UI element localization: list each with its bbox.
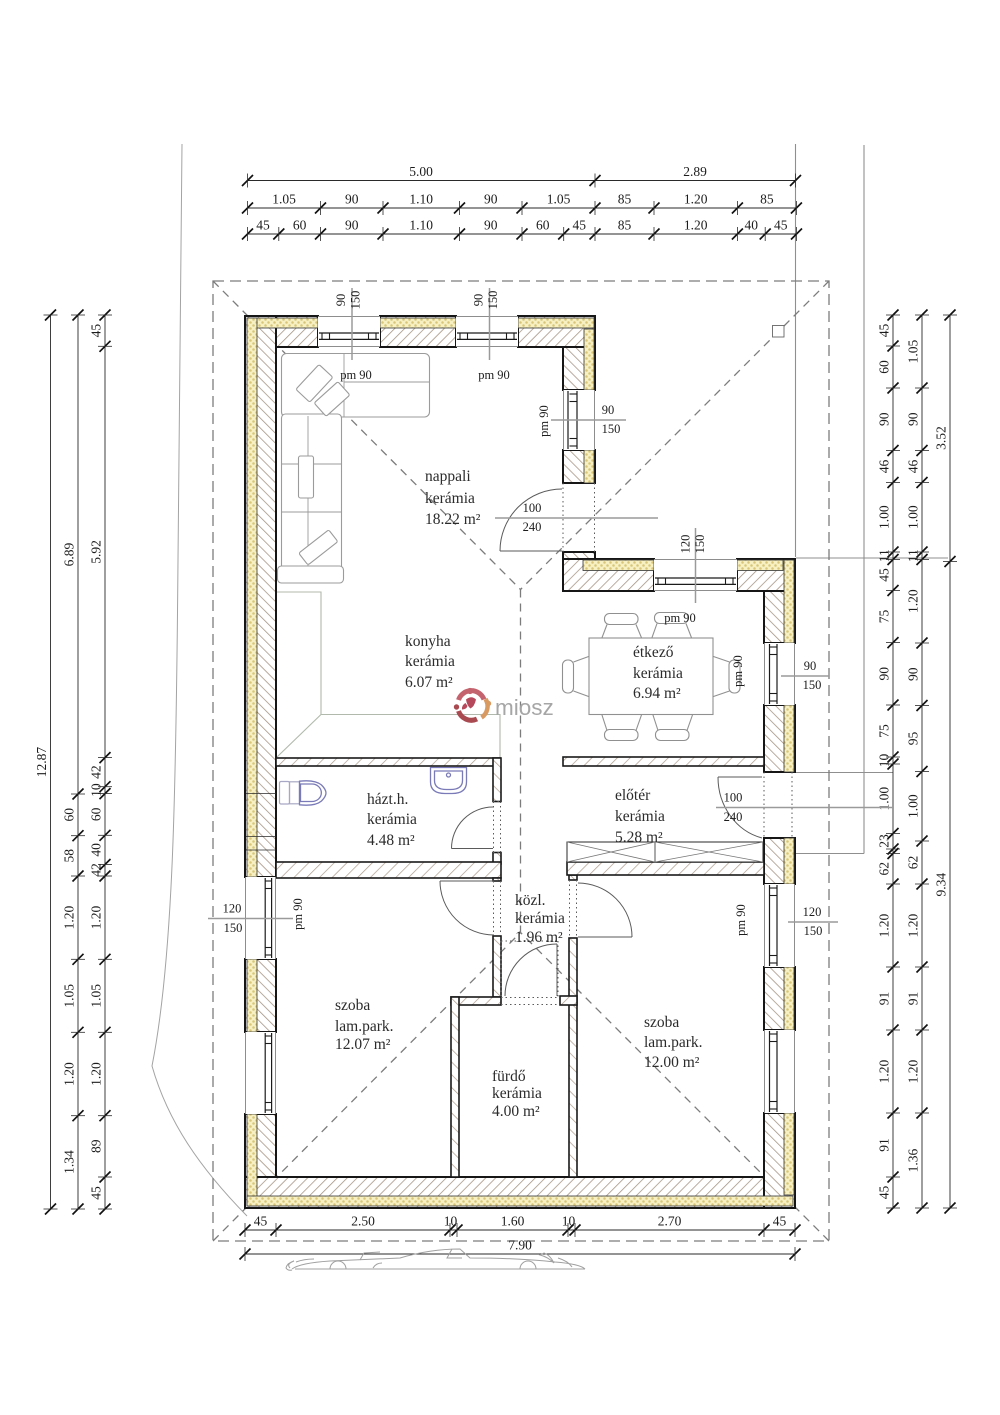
svg-text:89: 89	[89, 1139, 104, 1153]
svg-text:előtér: előtér	[615, 787, 651, 804]
svg-text:12.87: 12.87	[34, 747, 49, 778]
svg-text:2.70: 2.70	[658, 1214, 682, 1229]
svg-text:pm 90: pm 90	[537, 405, 551, 437]
svg-text:pm 90: pm 90	[340, 368, 372, 382]
svg-text:91: 91	[906, 992, 921, 1006]
svg-text:150: 150	[349, 291, 363, 310]
svg-text:2.89: 2.89	[683, 164, 707, 179]
svg-text:1.20: 1.20	[906, 913, 921, 937]
svg-text:45: 45	[89, 1186, 104, 1200]
svg-text:1.20: 1.20	[62, 906, 77, 930]
svg-text:90: 90	[345, 218, 359, 233]
svg-text:1.36: 1.36	[906, 1148, 921, 1172]
svg-text:pm 90: pm 90	[664, 611, 696, 625]
svg-text:100: 100	[724, 791, 743, 805]
svg-text:konyha: konyha	[405, 633, 451, 650]
svg-text:42: 42	[89, 765, 104, 779]
svg-text:85: 85	[760, 192, 774, 207]
svg-text:10: 10	[444, 1214, 458, 1229]
svg-text:150: 150	[804, 924, 823, 938]
svg-text:85: 85	[618, 192, 632, 207]
svg-text:1.05: 1.05	[906, 339, 921, 363]
svg-text:1.20: 1.20	[877, 913, 892, 937]
svg-text:1.20: 1.20	[906, 1059, 921, 1083]
svg-text:62: 62	[906, 856, 921, 870]
svg-text:miosz: miosz	[495, 695, 554, 720]
svg-text:1.05: 1.05	[272, 192, 296, 207]
svg-text:45: 45	[877, 1186, 892, 1200]
svg-text:11: 11	[877, 549, 892, 562]
svg-text:1.10: 1.10	[409, 218, 433, 233]
svg-text:kerámia: kerámia	[367, 811, 417, 828]
svg-text:4.48 m²: 4.48 m²	[367, 832, 415, 849]
svg-text:5.28 m²: 5.28 m²	[615, 829, 663, 846]
svg-text:közl.: közl.	[515, 892, 546, 909]
svg-text:91: 91	[877, 992, 892, 1006]
svg-text:1.20: 1.20	[62, 1062, 77, 1086]
svg-text:240: 240	[724, 810, 743, 824]
svg-text:1.00: 1.00	[906, 794, 921, 818]
svg-text:kerámia: kerámia	[492, 1085, 542, 1102]
svg-text:1.05: 1.05	[547, 192, 571, 207]
svg-text:szoba: szoba	[335, 997, 370, 1014]
svg-text:150: 150	[224, 921, 243, 935]
svg-text:kerámia: kerámia	[615, 808, 665, 825]
svg-text:90: 90	[804, 659, 817, 673]
svg-text:45: 45	[573, 218, 587, 233]
svg-text:5.92: 5.92	[89, 540, 104, 564]
svg-text:62: 62	[877, 862, 892, 876]
svg-text:45: 45	[877, 324, 892, 338]
svg-text:85: 85	[618, 218, 632, 233]
svg-text:45: 45	[774, 218, 788, 233]
svg-text:45: 45	[254, 1214, 268, 1229]
svg-text:45: 45	[256, 218, 270, 233]
svg-text:90: 90	[334, 294, 348, 307]
svg-text:pm 90: pm 90	[731, 655, 745, 687]
svg-text:1.34: 1.34	[62, 1150, 77, 1174]
svg-text:1.20: 1.20	[684, 218, 708, 233]
svg-text:kerámia: kerámia	[633, 665, 683, 682]
svg-text:1.20: 1.20	[906, 589, 921, 613]
svg-text:40: 40	[89, 843, 104, 857]
svg-text:1.05: 1.05	[89, 984, 104, 1008]
svg-text:150: 150	[602, 422, 621, 436]
svg-text:3.52: 3.52	[934, 426, 949, 450]
svg-text:5.00: 5.00	[409, 164, 433, 179]
svg-text:75: 75	[877, 610, 892, 624]
svg-text:90: 90	[877, 667, 892, 681]
svg-text:1.10: 1.10	[409, 192, 433, 207]
svg-text:42: 42	[89, 863, 104, 877]
svg-text:120: 120	[803, 905, 822, 919]
svg-text:45: 45	[773, 1214, 787, 1229]
svg-text:12.00 m²: 12.00 m²	[644, 1054, 700, 1071]
svg-text:6.07 m²: 6.07 m²	[405, 674, 453, 691]
svg-text:23: 23	[877, 834, 892, 848]
svg-text:90: 90	[484, 192, 498, 207]
svg-text:lam.park.: lam.park.	[335, 1018, 394, 1035]
svg-text:1.05: 1.05	[62, 984, 77, 1008]
svg-text:pm 90: pm 90	[734, 904, 748, 936]
svg-text:pm 90: pm 90	[478, 368, 510, 382]
svg-text:46: 46	[906, 460, 921, 474]
svg-text:11: 11	[906, 549, 921, 562]
svg-text:150: 150	[693, 535, 707, 554]
svg-text:95: 95	[906, 732, 921, 746]
svg-text:6.94 m²: 6.94 m²	[633, 685, 681, 702]
svg-text:kerámia: kerámia	[425, 490, 475, 507]
svg-text:7.90: 7.90	[508, 1238, 532, 1253]
svg-text:1.20: 1.20	[89, 1062, 104, 1086]
svg-text:150: 150	[803, 678, 822, 692]
svg-text:10: 10	[89, 783, 104, 797]
svg-text:240: 240	[523, 520, 542, 534]
svg-text:1.00: 1.00	[906, 505, 921, 529]
svg-text:90: 90	[602, 403, 615, 417]
svg-text:58: 58	[62, 849, 77, 863]
svg-text:100: 100	[523, 501, 542, 515]
svg-text:1.20: 1.20	[89, 906, 104, 930]
svg-text:pm 90: pm 90	[291, 898, 305, 930]
svg-text:60: 60	[877, 360, 892, 374]
svg-text:10: 10	[877, 754, 892, 768]
svg-text:1.20: 1.20	[684, 192, 708, 207]
svg-text:91: 91	[877, 1138, 892, 1152]
svg-text:90: 90	[472, 294, 486, 307]
svg-text:60: 60	[89, 807, 104, 821]
svg-text:18.22 m²: 18.22 m²	[425, 511, 481, 528]
svg-text:étkező: étkező	[633, 644, 674, 661]
svg-text:75: 75	[877, 724, 892, 738]
svg-text:120: 120	[223, 902, 242, 916]
svg-text:házt.h.: házt.h.	[367, 791, 408, 808]
svg-text:lam.park.: lam.park.	[644, 1034, 703, 1051]
svg-text:2.50: 2.50	[351, 1214, 375, 1229]
svg-text:12.07 m²: 12.07 m²	[335, 1036, 391, 1053]
svg-text:1.60: 1.60	[501, 1214, 525, 1229]
svg-text:kerámia: kerámia	[515, 910, 565, 927]
svg-text:45: 45	[877, 568, 892, 582]
svg-text:1.96 m²: 1.96 m²	[515, 929, 563, 946]
svg-text:90: 90	[906, 412, 921, 426]
svg-text:4.00 m²: 4.00 m²	[492, 1103, 540, 1120]
svg-text:1.20: 1.20	[877, 1059, 892, 1083]
svg-text:fürdő: fürdő	[492, 1068, 526, 1085]
svg-text:45: 45	[89, 324, 104, 338]
svg-text:szoba: szoba	[644, 1014, 679, 1031]
svg-text:90: 90	[484, 218, 498, 233]
svg-text:60: 60	[62, 808, 77, 822]
svg-text:40: 40	[745, 218, 759, 233]
svg-text:kerámia: kerámia	[405, 653, 455, 670]
svg-text:90: 90	[877, 412, 892, 426]
svg-text:nappali: nappali	[425, 468, 471, 485]
svg-text:120: 120	[679, 535, 693, 554]
svg-text:150: 150	[486, 291, 500, 310]
svg-text:6.89: 6.89	[62, 542, 77, 566]
svg-text:90: 90	[906, 667, 921, 681]
svg-text:60: 60	[536, 218, 550, 233]
svg-text:60: 60	[293, 218, 307, 233]
svg-text:9.34: 9.34	[934, 873, 949, 897]
svg-text:90: 90	[345, 192, 359, 207]
svg-text:10: 10	[562, 1214, 576, 1229]
svg-text:46: 46	[877, 460, 892, 474]
svg-text:1.00: 1.00	[877, 505, 892, 529]
